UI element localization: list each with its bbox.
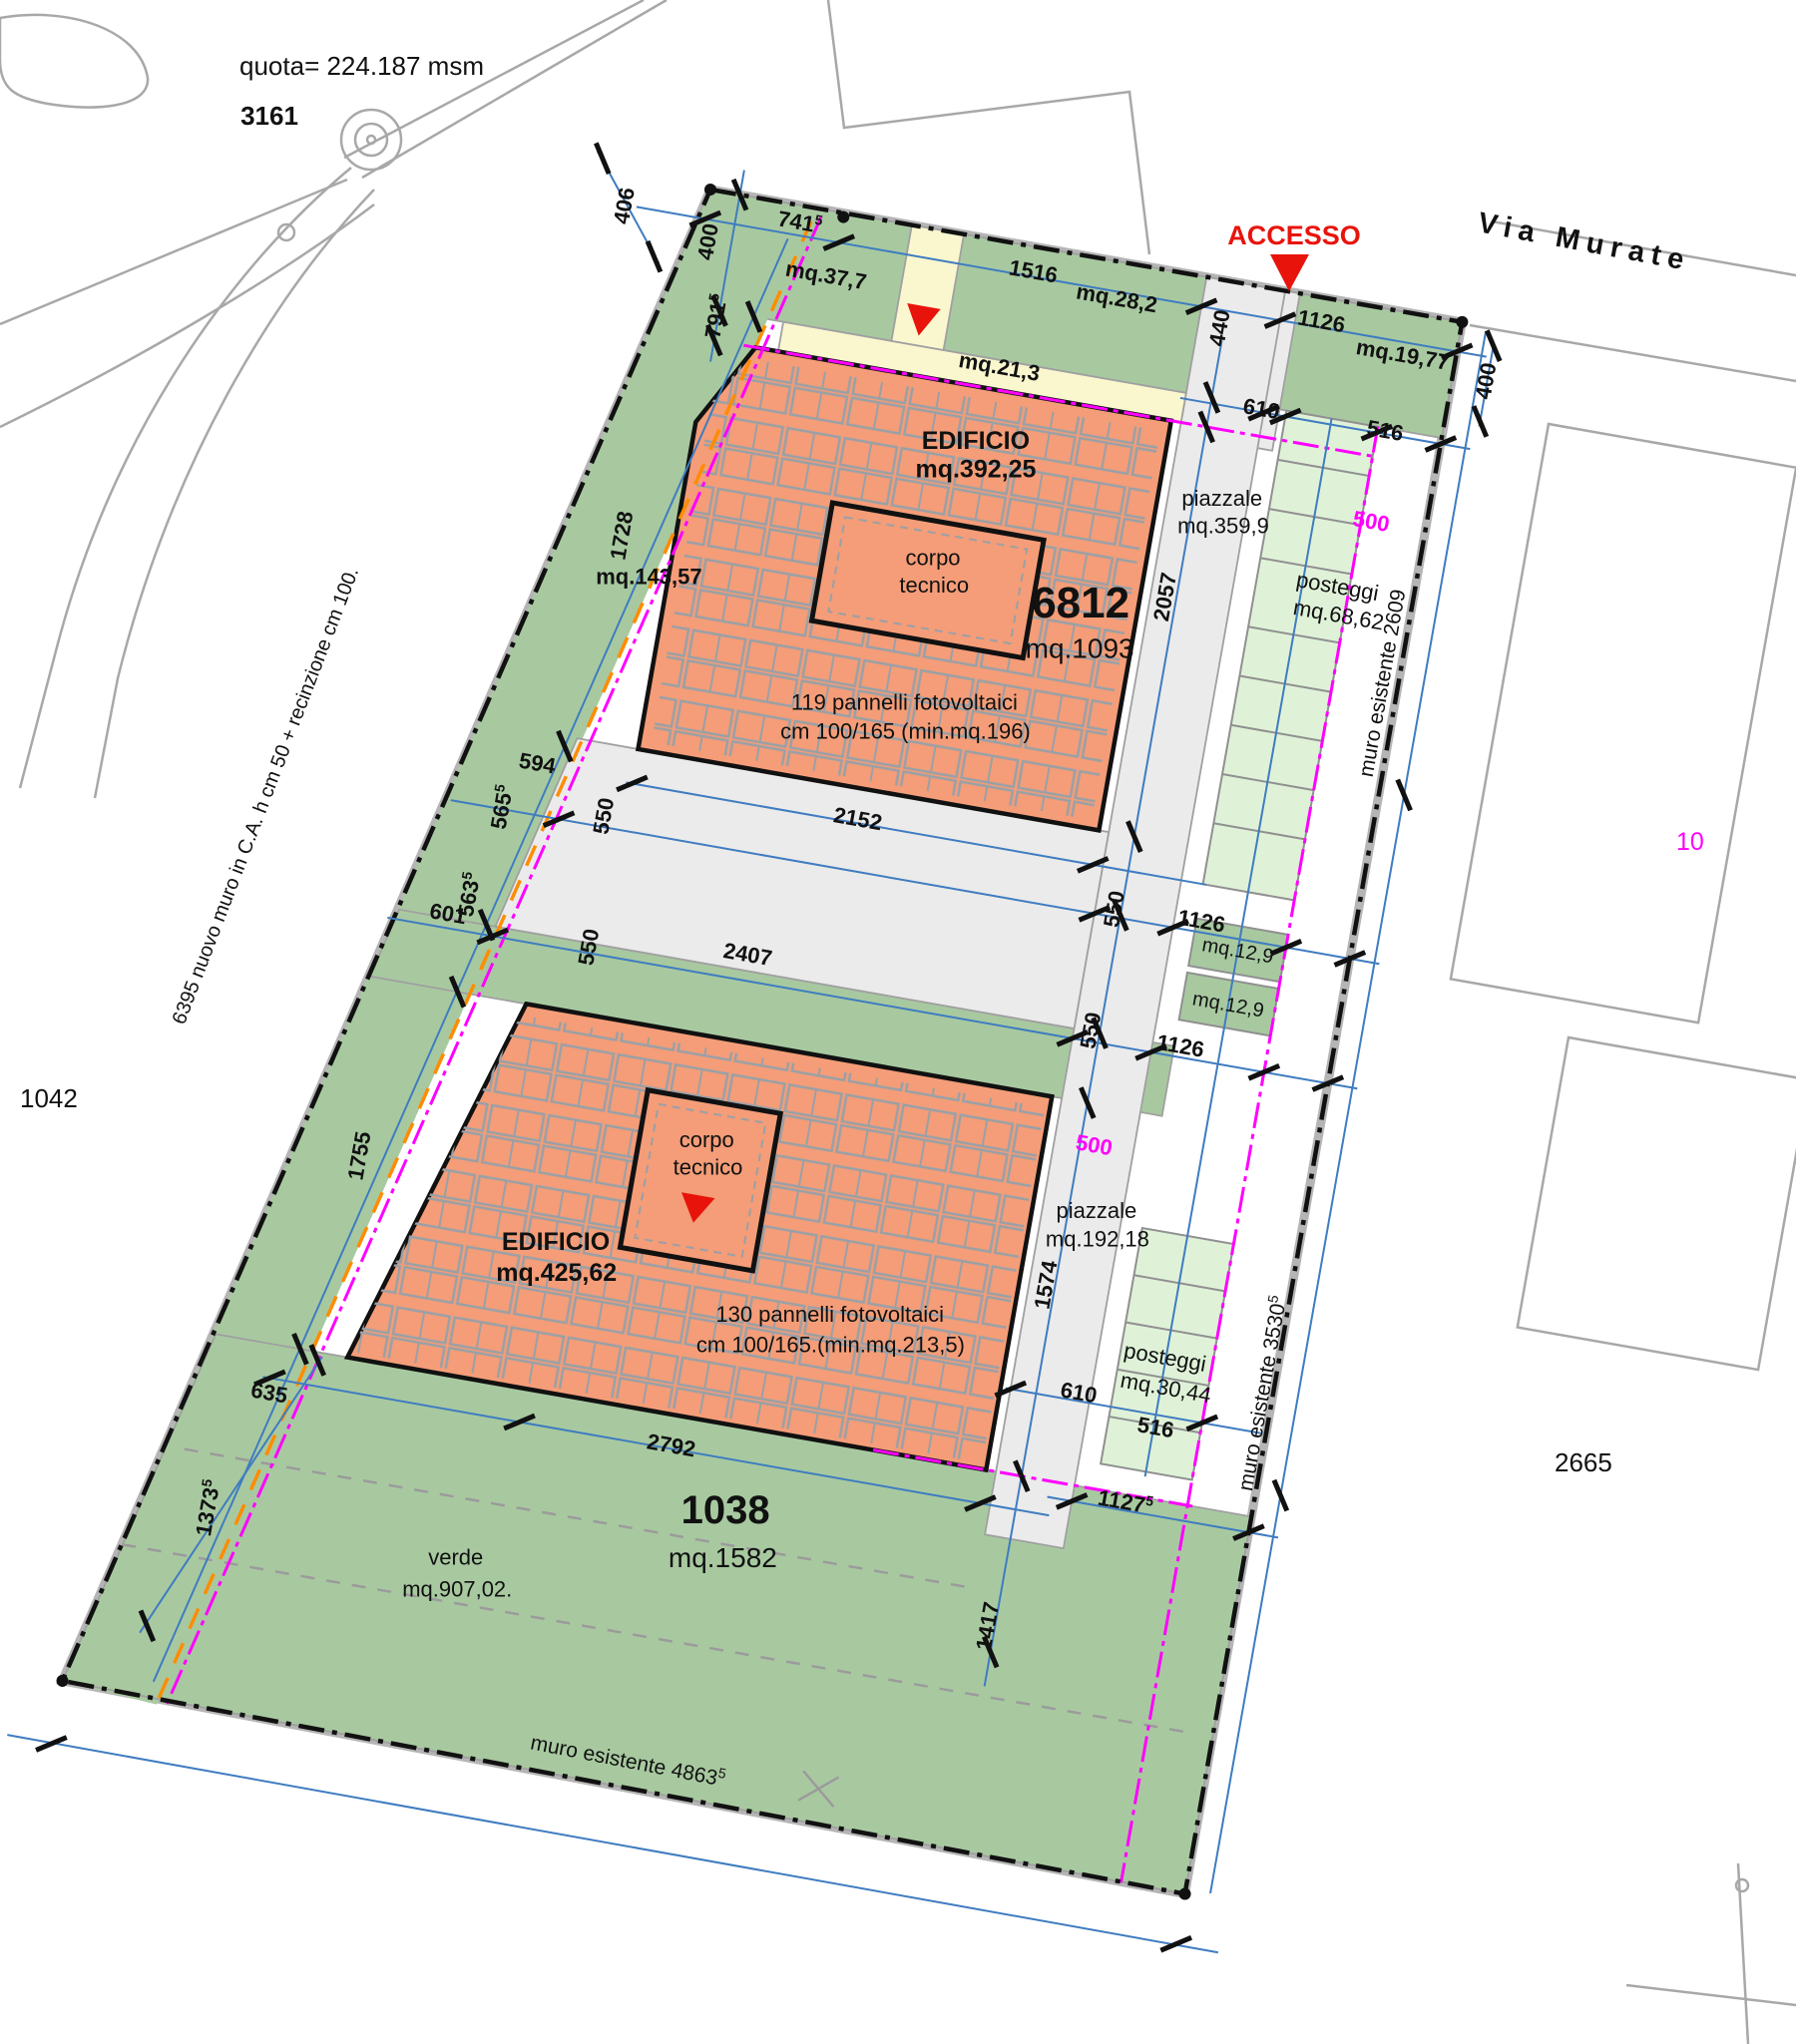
panels-2-line1: 130 pannelli fotovoltaici: [715, 1302, 944, 1327]
panels-2-line2: cm 100/165.(min.mq.213,5): [696, 1333, 965, 1358]
site-plan-page: 406 400 7415 7915 mq.37,7 1516 mq.28,2 m…: [0, 0, 1796, 2044]
neighbor-building: [1518, 1037, 1796, 1370]
corpo-tecnico-2-line1: corpo: [679, 1127, 734, 1152]
context-road-edge: [0, 204, 374, 427]
area-mq-143-57: mq.143,57: [596, 564, 701, 589]
piazzale-lower-label: piazzale: [1057, 1198, 1137, 1223]
context-road-edge: [95, 190, 374, 798]
building-1-title: EDIFICIO: [922, 427, 1030, 455]
piazzale-upper-label: piazzale: [1181, 486, 1262, 511]
quota-label: quota= 224.187 msm: [239, 51, 484, 81]
corpo-tecnico-2-line2: tecnico: [673, 1155, 743, 1180]
piazzale-upper-area: mq.359,9: [1177, 513, 1269, 538]
corpo-tecnico-1-line1: corpo: [905, 545, 960, 570]
street-name: Via Murate: [1476, 206, 1693, 277]
site-plan-drawing: 406 400 7415 7915 mq.37,7 1516 mq.28,2 m…: [0, 0, 1796, 2044]
parcel-area-1093: mq.1093: [1026, 632, 1134, 663]
panels-1-line1: 119 pannelli fotovoltaici: [791, 690, 1018, 715]
context-blob: [0, 15, 148, 108]
parcel-10-magenta: 10: [1676, 828, 1704, 856]
parcel-group: 406 400 7415 7915 mq.37,7 1516 mq.28,2 m…: [5, 91, 1512, 1961]
benchmark-id: 3161: [240, 101, 298, 131]
neighbor-building: [1451, 424, 1796, 1022]
building-2-title: EDIFICIO: [502, 1228, 610, 1256]
access-label: ACCESSO: [1227, 220, 1361, 250]
context-line: [1626, 1985, 1796, 2005]
context-road-edge: [0, 180, 347, 324]
benchmark-icon: [355, 124, 387, 156]
parcel-number-1038: 1038: [681, 1488, 770, 1532]
context-road-edge: [362, 0, 667, 178]
building-1-area: mq.392,25: [915, 456, 1036, 484]
street-edge: [1470, 325, 1796, 381]
dim-400-right: 400: [1470, 361, 1501, 402]
verde-area-label: mq.907,02.: [402, 1576, 512, 1601]
wall-left-label: 6395 nuovo muro in C.A. h cm 50 + recinz…: [169, 565, 364, 1027]
building-2-area: mq.425,62: [496, 1259, 617, 1287]
verde-label: verde: [428, 1545, 483, 1570]
benchmark-icon: [341, 110, 401, 170]
parcel-number-6812: 6812: [1032, 579, 1129, 627]
parcel-1042: 1042: [20, 1083, 78, 1113]
benchmark-icon: [367, 136, 375, 144]
parcel-area-1582: mq.1582: [669, 1542, 777, 1573]
piazzale-lower-area: mq.192,18: [1046, 1226, 1149, 1251]
panels-1-line2: cm 100/165 (min.mq.196): [780, 718, 1031, 743]
corpo-tecnico-1-line2: tecnico: [899, 573, 969, 598]
survey-point-icon: [1736, 1879, 1748, 1891]
parcel-2665: 2665: [1555, 1447, 1612, 1477]
